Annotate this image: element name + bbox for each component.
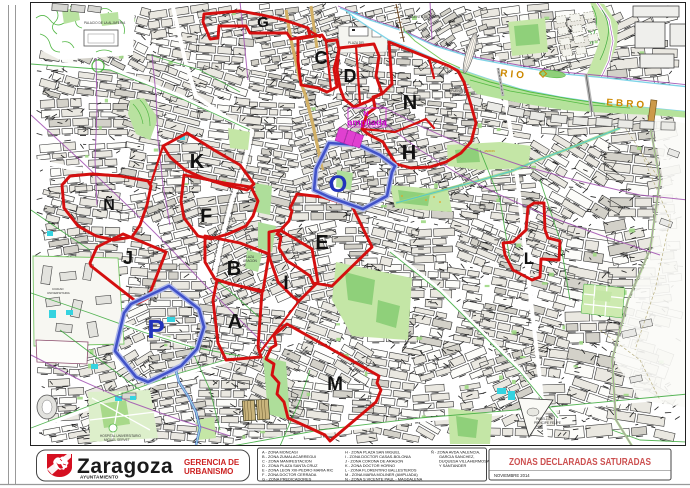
svg-text:L: L (524, 249, 534, 268)
svg-text:ARAGON: ARAGON (243, 259, 258, 263)
svg-text:ZONAS DECLARADAS SATURADAS: ZONAS DECLARADAS SATURADAS (509, 456, 651, 468)
svg-text:P: P (147, 314, 164, 344)
svg-text:K: K (190, 151, 205, 173)
svg-text:AYUNTAMIENTO: AYUNTAMIENTO (80, 475, 119, 480)
svg-text:D: D (344, 66, 357, 86)
svg-text:J: J (123, 248, 133, 268)
svg-text:JARDIN: JARDIN (484, 149, 495, 153)
svg-text:UNIVERSITARIA: UNIVERSITARIA (47, 291, 70, 295)
svg-text:E: E (315, 232, 328, 254)
svg-text:Ñ: Ñ (103, 194, 115, 214)
svg-text:MIGUEL SERVET: MIGUEL SERVET (104, 438, 130, 442)
svg-text:NOVIEMBRE 2014: NOVIEMBRE 2014 (494, 473, 530, 478)
svg-text:O: O (329, 171, 348, 198)
svg-text:N - ZONA S.VICENTE PAUL - MAGD: N - ZONA S.VICENTE PAUL - MAGDALENA (345, 476, 423, 481)
svg-text:PUENTE DE PIEDRA: PUENTE DE PIEDRA (410, 15, 442, 19)
svg-text:H: H (402, 142, 416, 164)
svg-text:A: A (228, 311, 242, 333)
svg-text:I: I (283, 273, 288, 294)
svg-text:GERENCIA DE: GERENCIA DE (184, 458, 240, 467)
svg-text:G - ZONA PREDICADORES: G - ZONA PREDICADORES (262, 476, 312, 481)
svg-text:Y SANTANDER: Y SANTANDER (439, 463, 467, 468)
svg-text:B: B (227, 258, 241, 280)
svg-text:PALACIO DE LA ALJAFERIA: PALACIO DE LA ALJAFERIA (84, 21, 126, 25)
svg-text:C: C (315, 48, 328, 68)
svg-text:M: M (327, 374, 343, 395)
svg-text:ampliada: ampliada (347, 118, 387, 128)
svg-text:URBANISMO: URBANISMO (184, 467, 233, 476)
svg-text:G: G (257, 14, 269, 31)
svg-text:PRINCIPE FELIPE: PRINCIPE FELIPE (534, 421, 561, 425)
svg-text:F: F (200, 206, 212, 227)
svg-text:N: N (403, 92, 417, 114)
